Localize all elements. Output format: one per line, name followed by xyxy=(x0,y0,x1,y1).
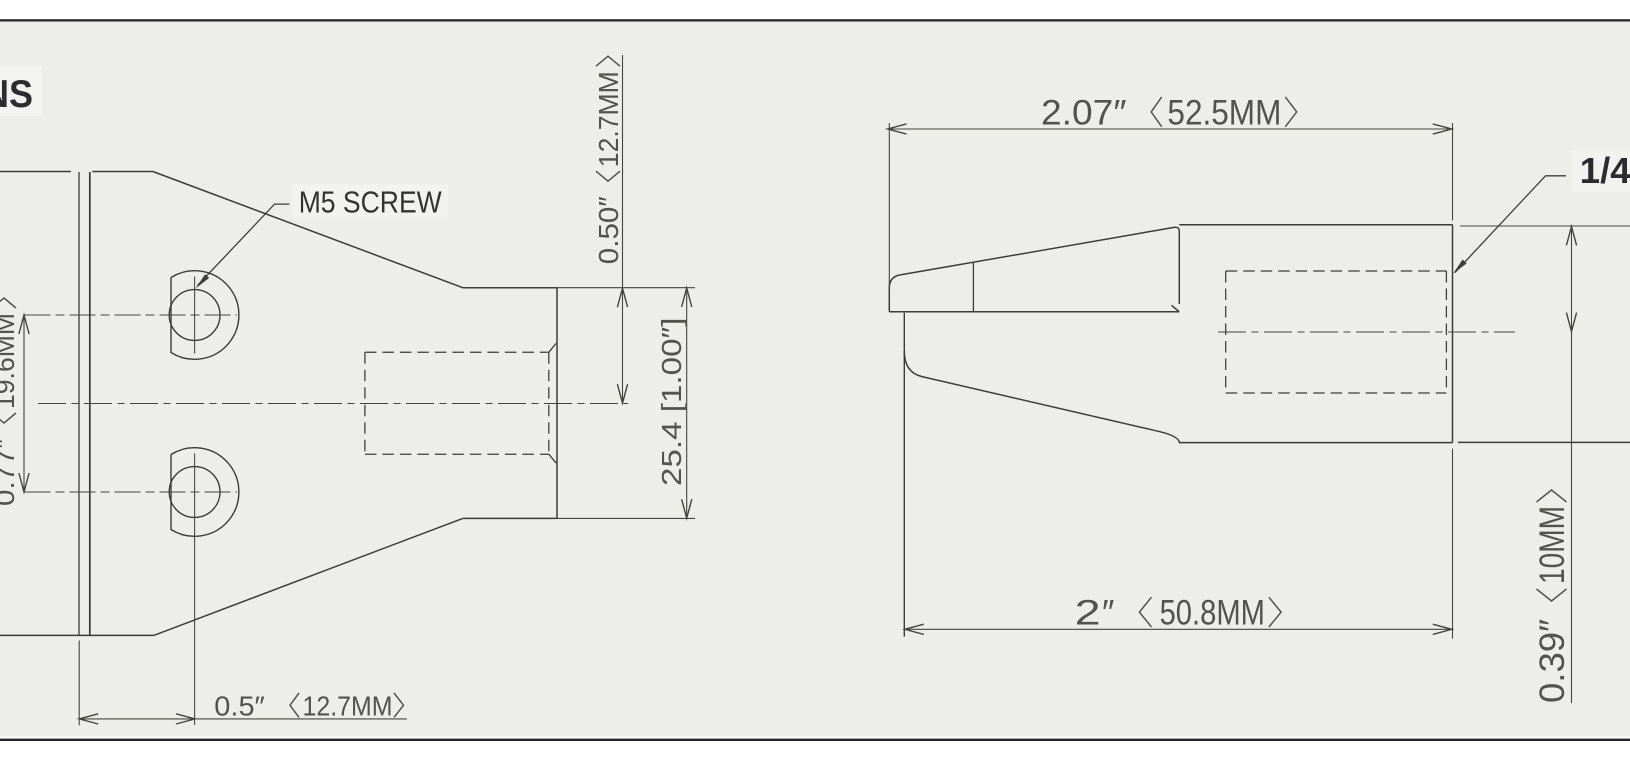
svg-text:12.7MM: 12.7MM xyxy=(593,71,624,167)
svg-text:12.7MM: 12.7MM xyxy=(303,690,393,721)
svg-text:52.5MM: 52.5MM xyxy=(1167,94,1281,133)
svg-text:2: 2 xyxy=(1075,594,1101,633)
svg-text:50.8MM: 50.8MM xyxy=(1160,594,1265,633)
svg-text:10MM: 10MM xyxy=(1533,506,1572,584)
svg-text:0.77″: 0.77″ xyxy=(0,438,20,506)
svg-text:0.50″: 0.50″ xyxy=(593,196,624,264)
svg-text:25.4 [1.00″]: 25.4 [1.00″] xyxy=(656,318,687,487)
svg-text:″: ″ xyxy=(1102,594,1114,633)
svg-text:1/4-20: 1/4-20 xyxy=(1580,150,1630,191)
svg-text:NS: NS xyxy=(0,73,33,116)
svg-text:M5 SCREW: M5 SCREW xyxy=(299,185,443,220)
svg-text:0.5″: 0.5″ xyxy=(214,690,265,721)
svg-text:19.6MM: 19.6MM xyxy=(0,313,20,409)
svg-text:0.39″: 0.39″ xyxy=(1533,619,1572,703)
svg-text:2.07″: 2.07″ xyxy=(1041,94,1127,133)
